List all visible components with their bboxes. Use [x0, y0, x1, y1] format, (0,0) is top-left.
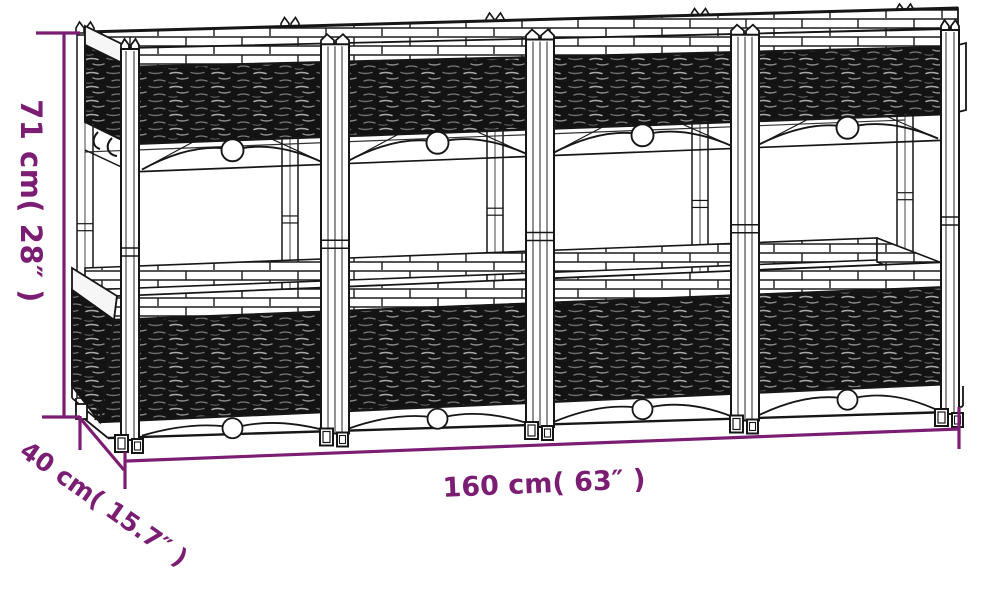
product-dimension-diagram: 71 cm( 28″ ) 40 cm( 15.7″ ) 160 cm( 63″ … [0, 0, 983, 593]
planter-line-art [0, 0, 983, 593]
height-dimension-label: 71 cm( 28″ ) [14, 99, 48, 303]
